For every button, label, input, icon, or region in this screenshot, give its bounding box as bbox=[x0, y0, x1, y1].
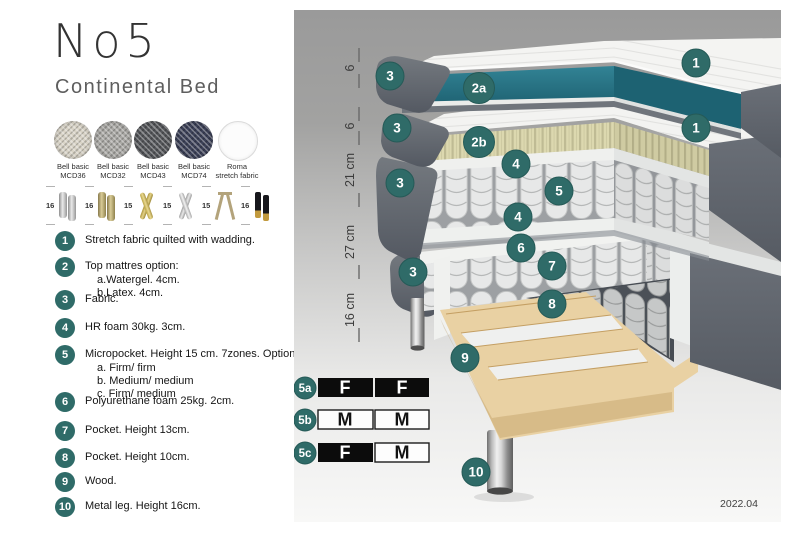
firmness-cell: F bbox=[397, 378, 408, 398]
leg-height: 15 bbox=[202, 201, 210, 210]
product-sheet: No5 Continental Bed Bell basicMCD36 Bell… bbox=[0, 0, 800, 533]
svg-text:10: 10 bbox=[468, 465, 483, 480]
fabric-label: Romastretch fabric bbox=[214, 163, 260, 180]
badge-pu-foam: 6 bbox=[507, 234, 535, 262]
svg-text:4: 4 bbox=[512, 157, 520, 172]
legend-number: 8 bbox=[55, 448, 75, 468]
gold-cross-leg-icon bbox=[135, 191, 161, 220]
fabric-label: Bell basicMCD43 bbox=[130, 163, 176, 180]
row-label: 5c bbox=[299, 448, 312, 460]
leg-option: 16 bbox=[241, 189, 279, 222]
legend-number: 5 bbox=[55, 345, 75, 365]
legend-number: 9 bbox=[55, 472, 75, 492]
scale-label: 6 bbox=[343, 64, 357, 71]
leg-height: 16 bbox=[241, 201, 249, 210]
badge-latex: 2b bbox=[464, 127, 495, 158]
legend-text: Polyurethane foam 25kg. 2cm. bbox=[85, 394, 234, 409]
leg-option: 16 bbox=[85, 189, 123, 222]
legend-number: 1 bbox=[55, 231, 75, 251]
row-label: 5b bbox=[298, 415, 311, 427]
back-left-leg bbox=[411, 298, 425, 348]
silver-cross-leg-icon bbox=[174, 191, 200, 220]
leg-height: 15 bbox=[163, 201, 171, 210]
svg-text:2b: 2b bbox=[471, 135, 486, 150]
badge-pocket-13: 7 bbox=[538, 252, 566, 280]
leg-height: 16 bbox=[46, 201, 54, 210]
leg-option: 15 bbox=[163, 189, 201, 222]
legend-text: Fabric. bbox=[85, 292, 119, 307]
page-subtitle: Continental Bed bbox=[55, 76, 220, 99]
badge-watergel: 2a bbox=[464, 73, 495, 104]
svg-text:5: 5 bbox=[555, 184, 563, 199]
fabric-swatch bbox=[94, 121, 132, 159]
bed-cutaway-diagram: 6 6 21 cm 27 cm 16 cm bbox=[294, 10, 781, 522]
leg-foot bbox=[411, 345, 425, 350]
svg-text:3: 3 bbox=[396, 176, 404, 191]
revision-date: 2022.04 bbox=[720, 498, 758, 510]
svg-text:3: 3 bbox=[386, 69, 394, 84]
badge-fabric: 3 bbox=[383, 114, 411, 142]
svg-text:9: 9 bbox=[461, 351, 469, 366]
legend-number: 10 bbox=[55, 497, 75, 517]
firmness-cell: M bbox=[395, 410, 410, 430]
badge-wood: 9 bbox=[451, 344, 479, 372]
svg-text:2a: 2a bbox=[472, 81, 487, 96]
fabric-swatch bbox=[218, 121, 258, 161]
leg-foot bbox=[487, 487, 513, 494]
row-label: 5a bbox=[299, 383, 312, 395]
fabric-label: Bell basicMCD74 bbox=[171, 163, 217, 180]
legend-text: Pocket. Height 13cm. bbox=[85, 423, 190, 438]
leg-height: 15 bbox=[124, 201, 132, 210]
black-gold-leg-icon bbox=[252, 191, 278, 220]
svg-text:1: 1 bbox=[692, 121, 700, 136]
svg-text:3: 3 bbox=[409, 265, 417, 280]
badge-stretch-fabric: 1 bbox=[682, 114, 710, 142]
svg-text:8: 8 bbox=[548, 297, 556, 312]
fabric-swatch bbox=[175, 121, 213, 159]
leg-height: 16 bbox=[85, 201, 93, 210]
firmness-cell: F bbox=[340, 443, 351, 463]
badge-hr-foam: 4 bbox=[502, 150, 530, 178]
leg-option: 15 bbox=[202, 189, 240, 222]
legend-number: 3 bbox=[55, 290, 75, 310]
legend-text: Stretch fabric quilted with wadding. bbox=[85, 233, 255, 248]
frame-edge-right bbox=[670, 246, 692, 346]
scale-label: 27 cm bbox=[343, 225, 357, 259]
firmness-cell: M bbox=[338, 410, 353, 430]
badge-pocket-10: 8 bbox=[538, 290, 566, 318]
badge-hr-foam: 4 bbox=[504, 203, 532, 231]
leg-option: 15 bbox=[124, 189, 162, 222]
fabric-swatch bbox=[134, 121, 172, 159]
legend-text: Pocket. Height 10cm. bbox=[85, 450, 190, 465]
legend-text: HR foam 30kg. 3cm. bbox=[85, 320, 185, 335]
badge-fabric: 3 bbox=[399, 258, 427, 286]
legend-text: Wood. bbox=[85, 474, 117, 489]
legend-number: 6 bbox=[55, 392, 75, 412]
svg-text:7: 7 bbox=[548, 259, 556, 274]
badge-micropocket: 5 bbox=[545, 177, 573, 205]
svg-text:1: 1 bbox=[692, 56, 700, 71]
badge-fabric: 3 bbox=[386, 169, 414, 197]
frame-edge bbox=[434, 256, 450, 340]
legend-text: Metal leg. Height 16cm. bbox=[85, 499, 201, 514]
firmness-options-table: 5a F F 5b M M 5c F M bbox=[294, 377, 429, 464]
scale-label: 6 bbox=[343, 122, 357, 129]
svg-text:3: 3 bbox=[393, 121, 401, 136]
badge-fabric: 3 bbox=[376, 62, 404, 90]
brass-leg-icon bbox=[96, 191, 122, 220]
svg-text:4: 4 bbox=[514, 210, 522, 225]
firmness-cell: F bbox=[340, 378, 351, 398]
scale-label: 16 cm bbox=[343, 293, 357, 327]
chrome-leg-icon bbox=[57, 191, 83, 220]
scale-label: 21 cm bbox=[343, 153, 357, 187]
legend-number: 4 bbox=[55, 318, 75, 338]
legend-number: 7 bbox=[55, 421, 75, 441]
leg-option: 16 bbox=[46, 189, 84, 222]
badge-stretch-fabric: 1 bbox=[682, 49, 710, 77]
legend-number: 2 bbox=[55, 257, 75, 277]
fabric-swatch bbox=[54, 121, 92, 159]
page-title: No5 bbox=[53, 14, 160, 68]
badge-metal-leg: 10 bbox=[462, 458, 490, 486]
hairpin-leg-icon bbox=[213, 191, 239, 220]
firmness-cell: M bbox=[395, 443, 410, 463]
svg-text:6: 6 bbox=[517, 241, 525, 256]
